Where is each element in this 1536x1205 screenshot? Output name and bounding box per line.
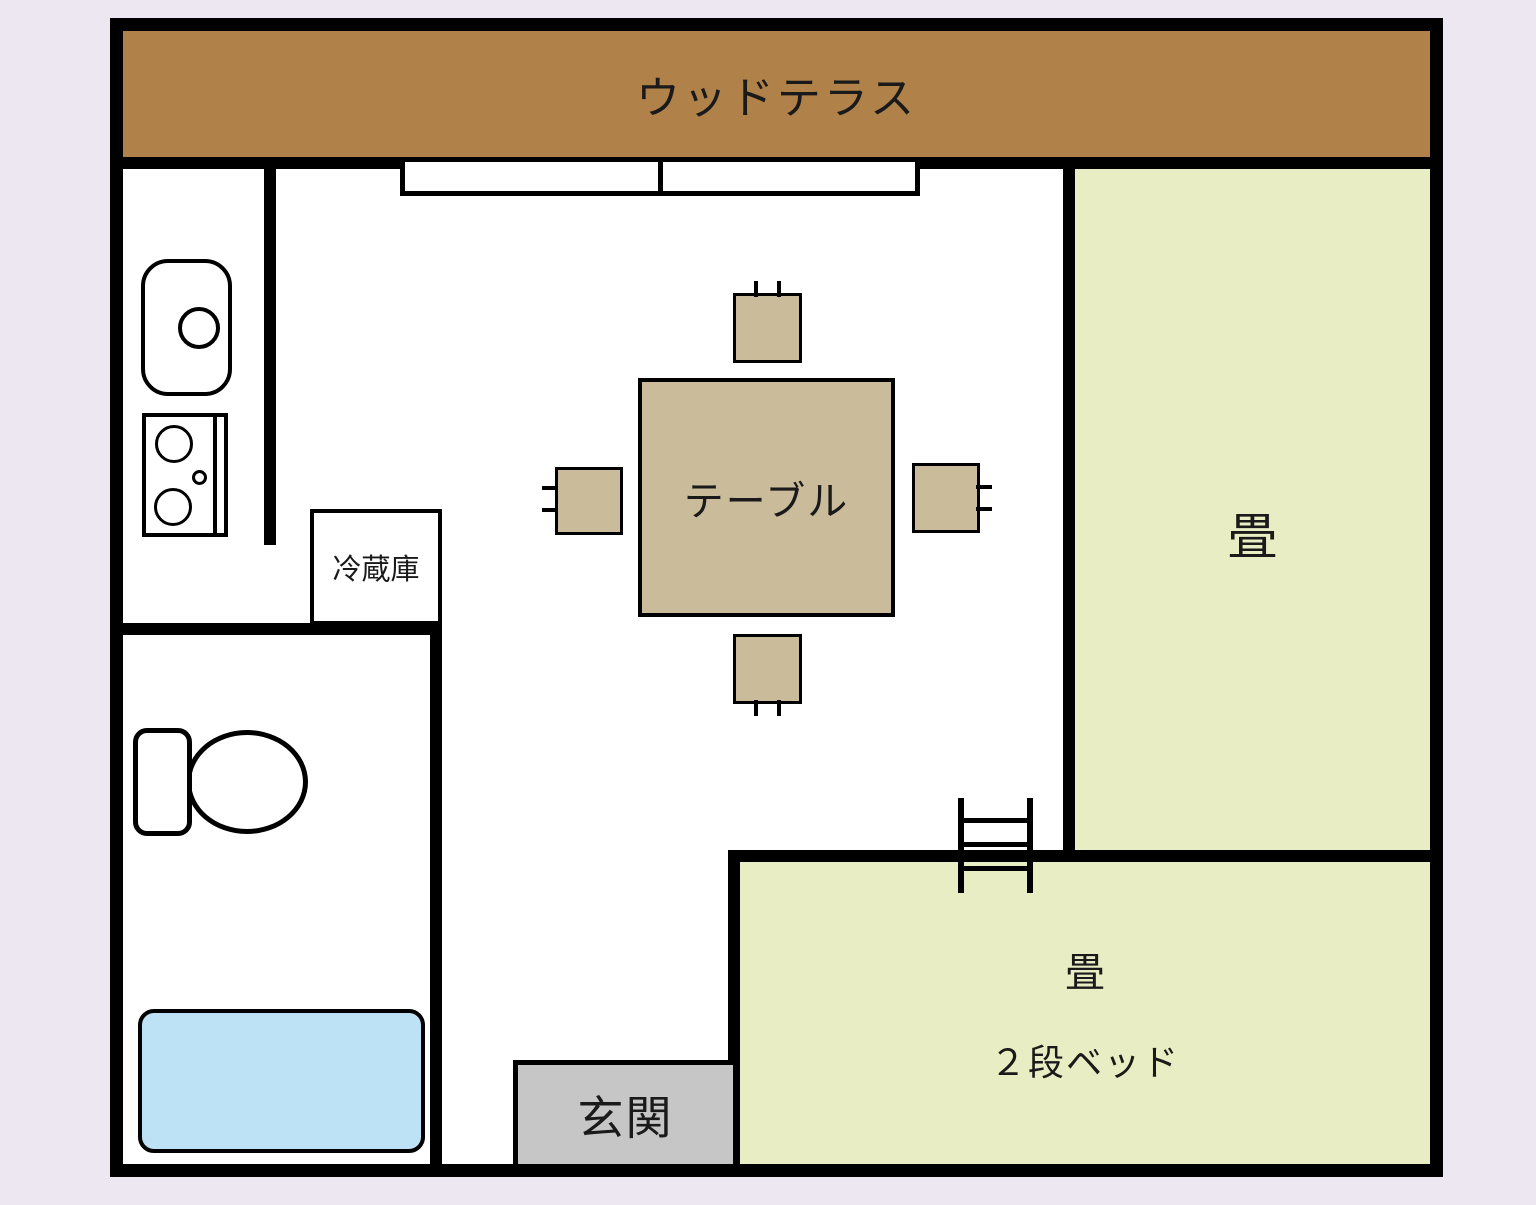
refrigerator: 冷蔵庫 bbox=[310, 509, 442, 625]
chair-east bbox=[912, 463, 980, 533]
ladder-rung bbox=[958, 842, 1033, 847]
tatami-room: 畳 bbox=[1075, 169, 1430, 850]
chair-back-tick bbox=[542, 486, 558, 490]
chair-back-tick bbox=[976, 485, 992, 489]
chair-north bbox=[733, 293, 802, 363]
entrance-label: 玄関 bbox=[578, 1082, 674, 1148]
chair-back-tick bbox=[754, 700, 758, 716]
chair-south bbox=[733, 634, 802, 704]
entrance: 玄関 bbox=[513, 1060, 738, 1164]
tatami-room-label: 畳 bbox=[1228, 497, 1278, 569]
stove-burner-top-icon bbox=[155, 425, 193, 463]
dining-table: テーブル bbox=[638, 378, 895, 617]
window-divider bbox=[658, 161, 663, 192]
toilet-tank-icon bbox=[133, 728, 192, 836]
wood-terrace: ウッドテラス bbox=[123, 31, 1430, 169]
chair-back-tick bbox=[777, 281, 781, 297]
chair-back-tick bbox=[976, 507, 992, 511]
chair-west bbox=[555, 467, 623, 535]
bunk-bed-room: 畳 ２段ベッド bbox=[740, 862, 1430, 1164]
wood-terrace-label: ウッドテラス bbox=[636, 62, 917, 126]
floor-plan-page: { "colors": { "background": "#ece7f0", "… bbox=[0, 0, 1536, 1205]
wall-kitchen bbox=[264, 169, 276, 545]
ladder-rung bbox=[958, 818, 1033, 823]
floor-plan: ウッドテラス 畳 畳 ２段ベッド 冷蔵庫 テーブル bbox=[110, 18, 1443, 1177]
chair-back-tick bbox=[542, 508, 558, 512]
bathtub bbox=[138, 1009, 425, 1153]
bunk-room-tatami-label: 畳 bbox=[1065, 940, 1105, 998]
stove-panel-line bbox=[213, 417, 217, 533]
stove-burner-small-icon bbox=[192, 470, 207, 485]
toilet-bowl-icon bbox=[186, 730, 308, 834]
refrigerator-label: 冷蔵庫 bbox=[332, 546, 419, 588]
wall-tatami-room-left bbox=[1063, 169, 1075, 862]
ladder-rung bbox=[958, 866, 1033, 871]
bunk-room-bed-label: ２段ベッド bbox=[990, 1034, 1180, 1086]
dining-table-label: テーブル bbox=[684, 469, 850, 527]
sliding-window bbox=[400, 157, 920, 196]
stove-burner-bottom-icon bbox=[154, 488, 192, 526]
chair-back-tick bbox=[754, 281, 758, 297]
chair-back-tick bbox=[777, 700, 781, 716]
wall-bathroom-right bbox=[430, 623, 442, 1164]
wall-bunk-room-top bbox=[728, 850, 1430, 862]
sink-drain-icon bbox=[178, 307, 220, 349]
